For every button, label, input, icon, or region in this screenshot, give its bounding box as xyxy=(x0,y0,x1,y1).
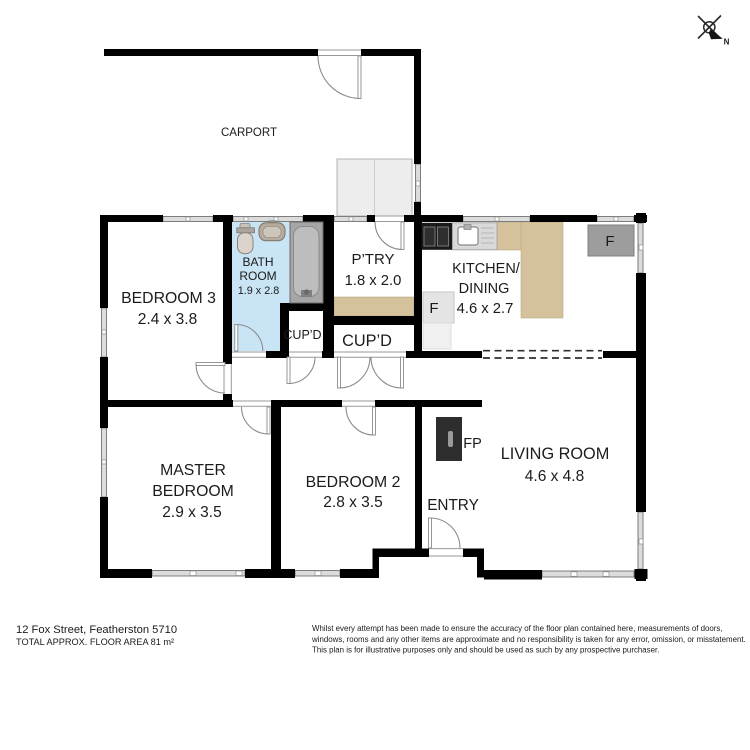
svg-text:FP: FP xyxy=(463,436,482,452)
svg-text:4.6 x 2.7: 4.6 x 2.7 xyxy=(457,301,514,317)
svg-text:1.8 x 2.0: 1.8 x 2.0 xyxy=(345,273,402,289)
svg-text:1.9 x 2.8: 1.9 x 2.8 xyxy=(238,285,279,297)
svg-text:BATH: BATH xyxy=(242,255,273,269)
svg-text:CUP’D: CUP’D xyxy=(342,332,392,350)
svg-text:CUP’D: CUP’D xyxy=(283,328,321,342)
svg-text:ENTRY: ENTRY xyxy=(427,497,479,514)
svg-text:2.4 x 3.8: 2.4 x 3.8 xyxy=(138,311,197,328)
svg-text:P’TRY: P’TRY xyxy=(351,251,394,268)
svg-text:KITCHEN/: KITCHEN/ xyxy=(452,261,521,277)
svg-text:F: F xyxy=(605,233,614,250)
svg-text:TOTAL APPROX. FLOOR AREA 81 m²: TOTAL APPROX. FLOOR AREA 81 m² xyxy=(16,637,174,647)
svg-text:This plan is for illustrative: This plan is for illustrative purposes o… xyxy=(312,646,659,655)
svg-text:ROOM: ROOM xyxy=(239,269,276,283)
svg-text:2.8 x 3.5: 2.8 x 3.5 xyxy=(323,494,382,511)
svg-text:BEDROOM: BEDROOM xyxy=(152,483,234,500)
svg-text:LIVING ROOM: LIVING ROOM xyxy=(501,445,610,463)
svg-text:2.9 x 3.5: 2.9 x 3.5 xyxy=(162,504,221,521)
svg-text:Whilst every attempt has been: Whilst every attempt has been made to en… xyxy=(312,624,723,633)
svg-text:12 Fox Street, Featherston 571: 12 Fox Street, Featherston 5710 xyxy=(16,624,177,636)
svg-text:BEDROOM 3: BEDROOM 3 xyxy=(121,290,216,307)
svg-text:BEDROOM 2: BEDROOM 2 xyxy=(306,474,401,491)
svg-text:4.6 x 4.8: 4.6 x 4.8 xyxy=(525,468,584,485)
svg-text:N: N xyxy=(724,38,730,47)
svg-text:windows, rooms and any other i: windows, rooms and any other items are a… xyxy=(311,635,746,644)
svg-text:MASTER: MASTER xyxy=(160,462,226,479)
svg-text:F: F xyxy=(429,300,438,317)
svg-text:CARPORT: CARPORT xyxy=(221,127,277,139)
svg-text:DINING: DINING xyxy=(459,281,510,297)
